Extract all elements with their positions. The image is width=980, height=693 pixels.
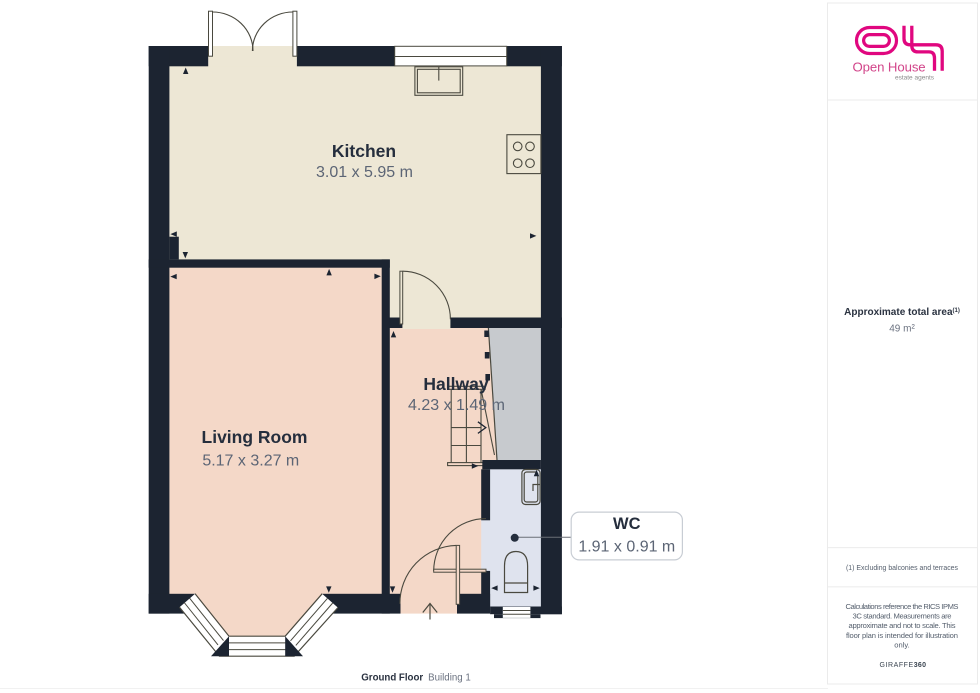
svg-text:Living Room: Living Room bbox=[202, 427, 308, 447]
svg-text:1.91 x 0.91 m: 1.91 x 0.91 m bbox=[578, 539, 675, 556]
svg-text:floor plan is intended for ill: floor plan is intended for illustration bbox=[846, 631, 958, 640]
svg-text:(1) Excluding balconies and te: (1) Excluding balconies and terraces bbox=[846, 563, 958, 572]
svg-text:WC: WC bbox=[613, 515, 641, 533]
svg-text:5.17 x 3.27 m: 5.17 x 3.27 m bbox=[202, 453, 299, 470]
svg-text:estate agents: estate agents bbox=[895, 75, 935, 82]
svg-text:only.: only. bbox=[894, 640, 909, 649]
svg-text:approximate and not to scale.: approximate and not to scale. This bbox=[849, 621, 956, 630]
svg-text:4.23 x 1.49 m: 4.23 x 1.49 m bbox=[408, 397, 505, 414]
svg-text:Approximate total area(1): Approximate total area(1) bbox=[844, 307, 960, 318]
svg-text:GIRAFFE360: GIRAFFE360 bbox=[880, 662, 927, 669]
svg-text:3.01 x 5.95 m: 3.01 x 5.95 m bbox=[316, 164, 413, 181]
svg-text:Open House: Open House bbox=[853, 60, 926, 75]
svg-text:Hallway: Hallway bbox=[423, 374, 488, 394]
svg-text:Kitchen: Kitchen bbox=[332, 141, 396, 161]
svg-text:Ground FloorBuilding 1: Ground FloorBuilding 1 bbox=[361, 673, 470, 684]
svg-text:49 m²: 49 m² bbox=[889, 324, 915, 335]
svg-text:Calculations reference the RIC: Calculations reference the RICS IPMS bbox=[846, 602, 959, 611]
svg-text:3C standard. Measurements are: 3C standard. Measurements are bbox=[853, 612, 952, 621]
